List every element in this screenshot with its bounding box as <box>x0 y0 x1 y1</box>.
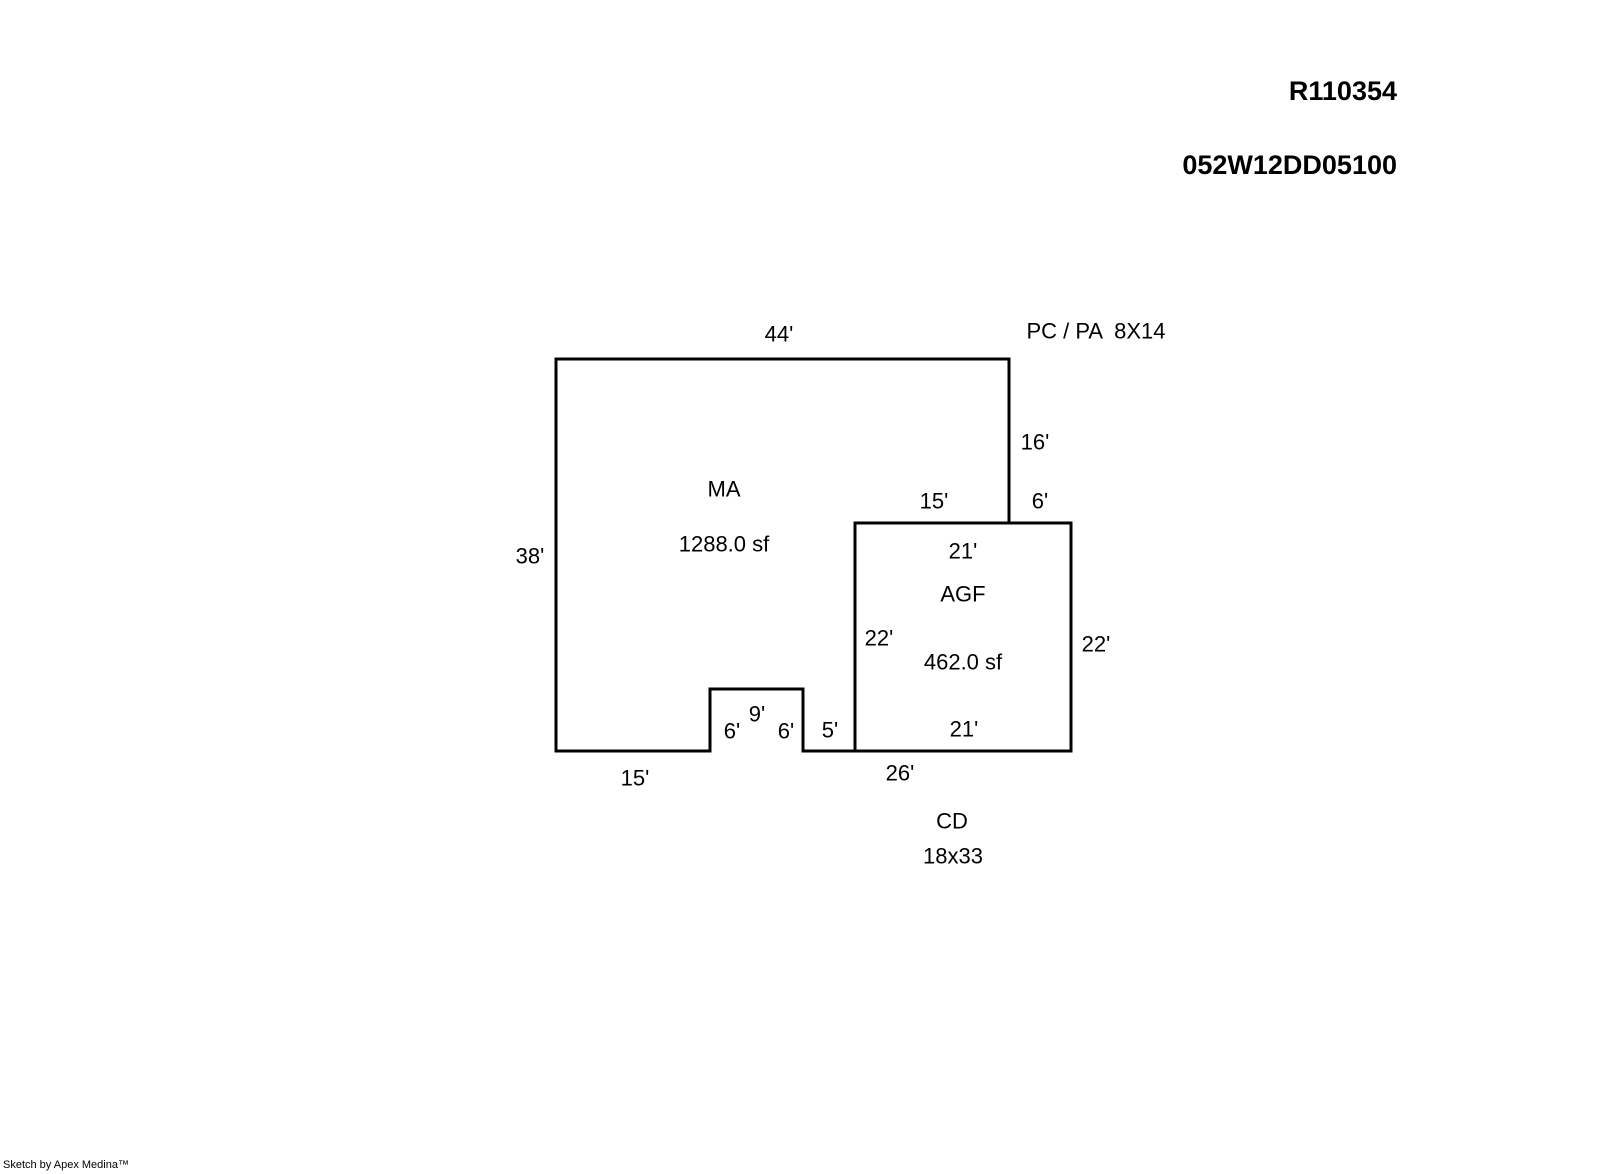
dim-9-notch: 9' <box>749 702 765 727</box>
dim-6-notch-right: 6' <box>778 719 794 744</box>
porch-pc-pa-label: PC / PA 8X14 <box>1026 319 1165 344</box>
area-agf-code: AGF <box>940 582 985 607</box>
area-ma-code: MA <box>708 477 741 502</box>
dim-6-agf-top: 6' <box>1032 489 1048 514</box>
sketch-credit: Sketch by Apex Medina™ <box>3 1159 129 1171</box>
dim-22-agf-left: 22' <box>865 626 894 651</box>
sketch-page: R110354 052W12DD05100 44'PC / PA 8X1416'… <box>0 0 1600 1174</box>
dim-38-left: 38' <box>516 544 545 569</box>
dim-16-right: 16' <box>1021 430 1050 455</box>
dim-44-top: 44' <box>765 322 794 347</box>
dim-21-agf-bottom: 21' <box>950 717 979 742</box>
area-cd-size: 18x33 <box>923 844 983 869</box>
area-ma-sf: 1288.0 sf <box>679 532 770 557</box>
dim-22-agf-right: 22' <box>1082 632 1111 657</box>
dim-15-agf-top: 15' <box>920 489 949 514</box>
dim-6-notch-left: 6' <box>724 719 740 744</box>
area-cd-code: CD <box>936 809 968 834</box>
dim-21-agf-top: 21' <box>949 539 978 564</box>
dim-15-bottom: 15' <box>621 766 650 791</box>
floor-plan-sketch: 44'PC / PA 8X1416'MA15'6'1288.0 sf21'38'… <box>0 0 1600 1174</box>
area-agf-sf: 462.0 sf <box>924 650 1003 675</box>
dim-26-bottom: 26' <box>886 761 915 786</box>
ma-outline <box>556 359 1009 751</box>
dim-5-bottom: 5' <box>822 718 838 743</box>
